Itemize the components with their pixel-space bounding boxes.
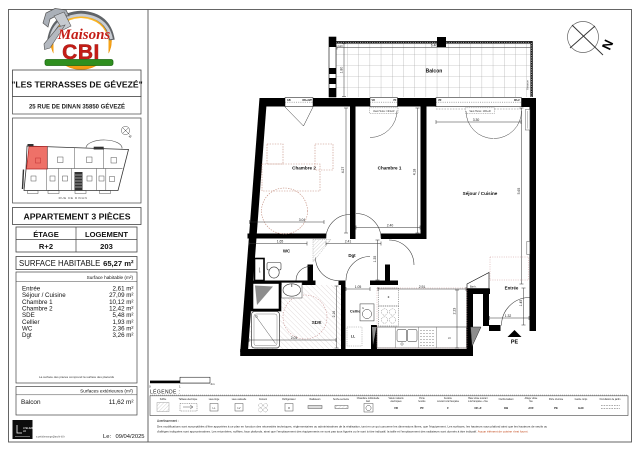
svg-text:Séjour / Cuisine: Séjour / Cuisine: [463, 191, 498, 196]
svg-text:1.65: 1.65: [277, 240, 284, 244]
svg-text:1.35: 1.35: [373, 256, 377, 263]
svg-text:Dgt: Dgt: [348, 253, 356, 258]
svg-text:2.16: 2.16: [332, 311, 336, 318]
svg-text:G: G: [362, 306, 364, 310]
svg-text:LOGEMENT: LOGEMENT: [85, 230, 128, 239]
svg-text:Le:: Le:: [103, 434, 111, 440]
svg-text:La surface des pièces comprend: La surface des pièces comprend la surfac…: [39, 375, 115, 379]
svg-text:PE: PE: [554, 406, 558, 410]
svg-text:6.40: 6.40: [431, 44, 438, 48]
svg-text:Dgt: Dgt: [22, 332, 32, 339]
svg-text:Volets roulants: Volets roulants: [388, 397, 404, 400]
svg-text:gaine: gaine: [259, 267, 261, 273]
svg-text:5.65: 5.65: [517, 188, 521, 195]
svg-text:203: 203: [100, 242, 113, 251]
svg-text:Balcon: Balcon: [21, 399, 41, 406]
svg-text:F: F: [447, 406, 449, 410]
svg-text:d'allèges indiquées sont appro: d'allèges indiquées sont approximatives.…: [157, 430, 528, 434]
svg-text:"LES TERRASSES DE GÉVEZÉ": "LES TERRASSES DE GÉVEZÉ": [11, 80, 142, 90]
svg-text:OB: OB: [504, 406, 508, 410]
svg-text:Réfrigérateur: Réfrigérateur: [282, 398, 296, 401]
svg-text:Bar h.: Bar h.: [470, 286, 477, 289]
svg-text:OB+AVP: OB+AVP: [302, 99, 312, 102]
svg-text:VR: VR: [438, 99, 442, 102]
svg-text:R+2: R+2: [39, 242, 53, 251]
svg-text:GB: GB: [287, 99, 291, 102]
svg-text:Oscillo-battant: Oscillo-battant: [499, 398, 514, 401]
svg-text:Occultation de jardin: Occultation de jardin: [600, 398, 622, 401]
svg-text:électriques: électriques: [390, 400, 402, 403]
svg-text:OF+F: OF+F: [514, 99, 521, 102]
svg-text:ouvrant à la française: ouvrant à la française: [437, 400, 460, 403]
svg-text:Surface habitable (m²): Surface habitable (m²): [87, 275, 134, 280]
svg-text:Réserve: Réserve: [526, 80, 530, 90]
svg-text:2m: 2m: [211, 382, 216, 386]
svg-text:WC: WC: [283, 249, 291, 254]
svg-text:Soffite: Soffite: [160, 398, 167, 401]
svg-text:3,26 m²: 3,26 m²: [113, 332, 134, 339]
svg-text:2.04: 2.04: [291, 336, 298, 340]
svg-text:Balcon: Balcon: [426, 69, 443, 75]
svg-text:à la française + fixe: à la française + fixe: [468, 400, 489, 403]
svg-text:LD: LD: [23, 430, 26, 433]
svg-text:3.30: 3.30: [473, 118, 480, 122]
svg-text:LV: LV: [448, 336, 451, 340]
svg-text:1.45: 1.45: [519, 300, 523, 307]
svg-text:Chaudière individuelle: Chaudière individuelle: [357, 397, 380, 400]
svg-text:11,62 m²: 11,62 m²: [109, 399, 134, 406]
svg-text:1.32: 1.32: [505, 314, 512, 318]
svg-text:PF: PF: [393, 99, 397, 102]
svg-text:GdC: GdC: [578, 406, 584, 410]
svg-text:R: R: [288, 406, 290, 410]
svg-text:Vaut.Huiss: 19/1eR: Vaut.Huiss: 19/1eR: [373, 110, 395, 113]
svg-text:Des modifications sont suscept: Des modifications sont susceptibles d'êt…: [157, 424, 548, 428]
svg-text:Vaut.Huiss: 19/1eR: Vaut.Huiss: 19/1eR: [469, 110, 491, 113]
svg-text:09/04/2025: 09/04/2025: [116, 434, 145, 440]
svg-text:RUE DE DINAN: RUE DE DINAN: [59, 196, 88, 200]
svg-text:VR: VR: [372, 99, 376, 102]
svg-text:Chambre 2: Chambre 2: [292, 166, 316, 171]
svg-text:PE: PE: [511, 340, 519, 346]
svg-text:LV: LV: [238, 406, 241, 410]
svg-text:fenêtre: fenêtre: [418, 400, 426, 403]
svg-text:Sèche-serviette: Sèche-serviette: [333, 398, 350, 401]
svg-text:Avertissement :: Avertissement :: [157, 419, 179, 423]
svg-text:VR: VR: [394, 406, 398, 410]
svg-text:Chambre 1: Chambre 1: [378, 166, 402, 171]
svg-text:a.petitdemange@archi-ld.fr: a.petitdemange@archi-ld.fr: [36, 436, 65, 439]
svg-text:SURFACE HABITABLE: SURFACE HABITABLE: [19, 259, 100, 268]
svg-text:1.80: 1.80: [340, 67, 344, 74]
svg-text:Tableau électrique: Tableau électrique: [179, 398, 198, 401]
svg-text:4.27: 4.27: [341, 167, 345, 174]
svg-text:OF+F: OF+F: [474, 406, 482, 410]
svg-text:65,27 m²: 65,27 m²: [103, 259, 134, 268]
svg-text:2.23: 2.23: [452, 308, 456, 315]
svg-text:Radiateurs: Radiateurs: [309, 398, 321, 401]
svg-text:4.18: 4.18: [413, 169, 417, 176]
svg-text:2.40: 2.40: [387, 224, 394, 228]
svg-text:Allège vitrée: Allège vitrée: [525, 397, 538, 400]
svg-text:Entrée: Entrée: [505, 286, 519, 291]
svg-text:2.41: 2.41: [345, 240, 352, 244]
svg-text:2.91: 2.91: [419, 285, 426, 289]
svg-text:Surfaces extérieures (m²): Surfaces extérieures (m²): [80, 389, 133, 394]
svg-text:25 RUE DE DINAN 35850 GÉVEZÉ: 25 RUE DE DINAN 35850 GÉVEZÉ: [29, 103, 125, 111]
svg-text:Porte d'entrée: Porte d'entrée: [549, 398, 564, 401]
svg-text:LÉGENDE :: LÉGENDE :: [150, 389, 180, 396]
svg-text:AVF: AVF: [528, 406, 534, 410]
svg-text:ÉTAGE: ÉTAGE: [33, 230, 59, 239]
svg-text:Fenêtre: Fenêtre: [444, 397, 453, 400]
svg-text:Porte: Porte: [419, 397, 425, 400]
svg-text:1.05: 1.05: [355, 285, 362, 289]
svg-text:Garde corps: Garde corps: [575, 398, 588, 401]
svg-text:Cuisson: Cuisson: [259, 399, 268, 401]
svg-text:PF: PF: [420, 406, 424, 410]
svg-text:3.04: 3.04: [299, 218, 306, 222]
svg-text:Lave-vaisselle: Lave-vaisselle: [232, 399, 247, 401]
svg-text:Baie vitrée ouvrant: Baie vitrée ouvrant: [468, 397, 488, 400]
svg-text:Lave-linge: Lave-linge: [209, 399, 220, 401]
svg-text:APPARTEMENT 3 PIÈCES: APPARTEMENT 3 PIÈCES: [23, 212, 130, 222]
